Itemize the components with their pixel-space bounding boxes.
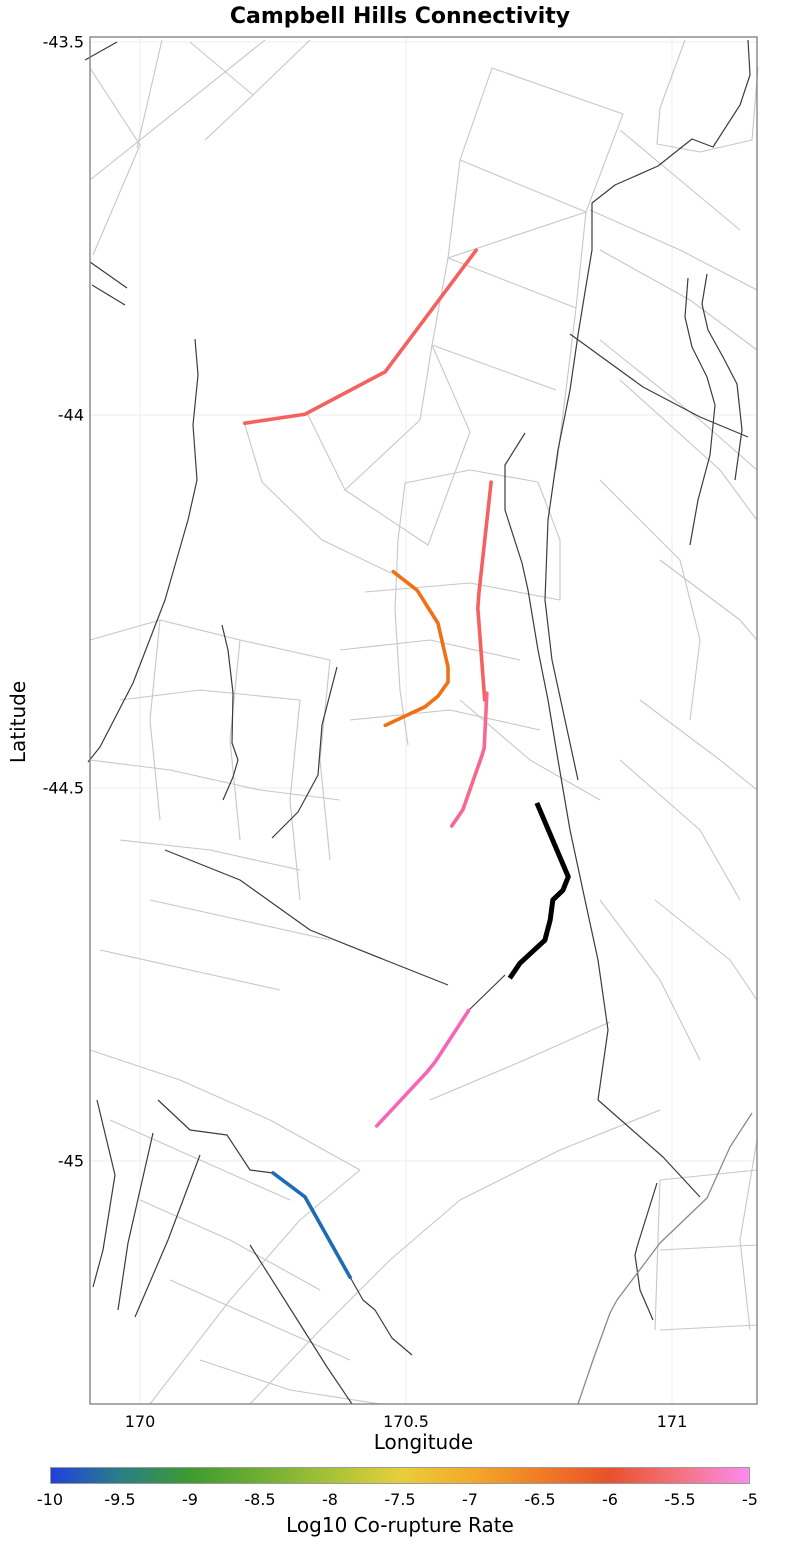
corupture-segment <box>245 250 476 423</box>
fault-trace-light <box>405 470 538 483</box>
fault-trace-light <box>430 1022 610 1100</box>
fault-trace-light <box>640 700 757 790</box>
fault-trace-dark <box>702 274 742 480</box>
fault-trace-light <box>655 1180 660 1330</box>
fault-trace-light <box>150 900 330 940</box>
fault-trace-light <box>150 620 160 820</box>
corupture-segment <box>478 482 491 700</box>
fault-trace-dark <box>135 1155 200 1317</box>
y-tick-label: -44.5 <box>4 779 84 798</box>
colorbar-tick-label: -6 <box>580 1490 640 1509</box>
fault-trace-dark <box>88 339 198 762</box>
colorbar-tick-label: -9.5 <box>90 1490 150 1509</box>
y-tick-label: -44 <box>4 406 84 425</box>
fault-trace-dark <box>222 625 238 800</box>
fault-trace-dark <box>250 1245 352 1404</box>
fault-trace-dark <box>505 433 608 1100</box>
colorbar-tick-label: -6.5 <box>510 1490 570 1509</box>
colorbar-gradient <box>50 1467 750 1484</box>
fault-trace-light <box>90 1050 360 1170</box>
fault-trace-light <box>100 950 280 990</box>
colorbar-tick-label: -5.5 <box>650 1490 710 1509</box>
fault-trace-light <box>90 760 340 800</box>
fault-trace-light <box>90 68 140 255</box>
fault-trace-light <box>600 250 757 350</box>
fault-trace-light <box>660 1170 757 1180</box>
x-tick-label: 171 <box>632 1412 712 1431</box>
fault-trace-light <box>90 40 265 180</box>
fault-trace-light <box>660 1245 757 1250</box>
fault-trace-light <box>660 560 757 640</box>
fault-trace-light <box>460 1110 660 1200</box>
corupture-segment <box>377 1010 469 1126</box>
fault-trace-light <box>245 425 391 573</box>
fault-trace-light <box>170 1280 350 1360</box>
fault-trace-light <box>205 95 253 140</box>
fault-trace-light <box>350 710 540 730</box>
corupture-segment <box>452 693 487 826</box>
corupture-segment <box>385 572 448 726</box>
colorbar-tick-label: -8.5 <box>230 1490 290 1509</box>
fault-trace-light <box>620 380 757 520</box>
fault-trace-light <box>345 420 420 490</box>
fault-trace-light <box>660 1325 757 1330</box>
colorbar-tick-label: -7 <box>440 1490 500 1509</box>
x-tick-label: 170.5 <box>366 1412 446 1431</box>
fault-trace-light <box>120 690 300 700</box>
fault-trace-light <box>538 482 560 600</box>
map-plot <box>0 0 800 1548</box>
fault-trace-light <box>620 760 740 900</box>
colorbar-tick-label: -7.5 <box>370 1490 430 1509</box>
fault-trace-light <box>190 40 310 95</box>
fault-trace-dark <box>469 975 505 1010</box>
x-tick-label: 170 <box>100 1412 180 1431</box>
colorbar-tick-label: -5 <box>720 1490 780 1509</box>
fault-trace-dark <box>158 1100 273 1173</box>
fault-trace-dark <box>545 40 750 780</box>
fault-trace-light <box>590 210 757 290</box>
fault-trace-light <box>460 160 586 212</box>
fault-trace-light <box>365 583 560 600</box>
y-tick-label: -43.5 <box>4 33 84 52</box>
fault-trace-light <box>250 1200 460 1404</box>
x-axis-label: Longitude <box>90 1430 757 1454</box>
fault-trace-light <box>600 340 757 470</box>
fault-trace-light <box>448 68 623 258</box>
colorbar-tick-label: -9 <box>160 1490 220 1509</box>
fault-trace-dark <box>350 1277 412 1355</box>
fault-trace-dark <box>118 1133 153 1310</box>
fault-trace-light <box>90 620 330 660</box>
fault-trace-light <box>200 1360 380 1404</box>
fault-trace-light <box>140 1200 320 1290</box>
plot-border <box>90 37 757 1404</box>
fault-trace-light <box>460 700 600 800</box>
fault-trace-light <box>110 1120 290 1200</box>
fault-trace-light <box>340 640 520 660</box>
y-tick-label: -45 <box>4 1152 84 1171</box>
fault-trace-dark <box>93 1100 115 1287</box>
fault-trace-light <box>620 130 740 230</box>
shoreline-trace <box>578 1113 752 1404</box>
fault-trace-light <box>320 660 330 860</box>
fault-trace-dark <box>90 262 127 288</box>
fault-trace-light <box>740 1140 757 1330</box>
fault-trace-light <box>120 840 300 870</box>
colorbar-tick-label: -10 <box>20 1490 80 1509</box>
fault-trace-dark <box>92 285 125 305</box>
colorbar-tick-label: -8 <box>300 1490 360 1509</box>
colorbar-label: Log10 Co-rupture Rate <box>0 1513 800 1537</box>
corupture-segment <box>273 1173 350 1277</box>
target-fault-line <box>510 803 569 978</box>
fault-trace-light <box>600 480 700 720</box>
fault-trace-light <box>420 258 448 420</box>
fault-trace-light <box>655 900 757 1000</box>
fault-trace-dark <box>570 334 748 437</box>
fault-trace-light <box>307 345 470 545</box>
fault-trace-light <box>432 345 556 390</box>
figure: Campbell Hills Connectivity Latitude Lon… <box>0 0 800 1548</box>
